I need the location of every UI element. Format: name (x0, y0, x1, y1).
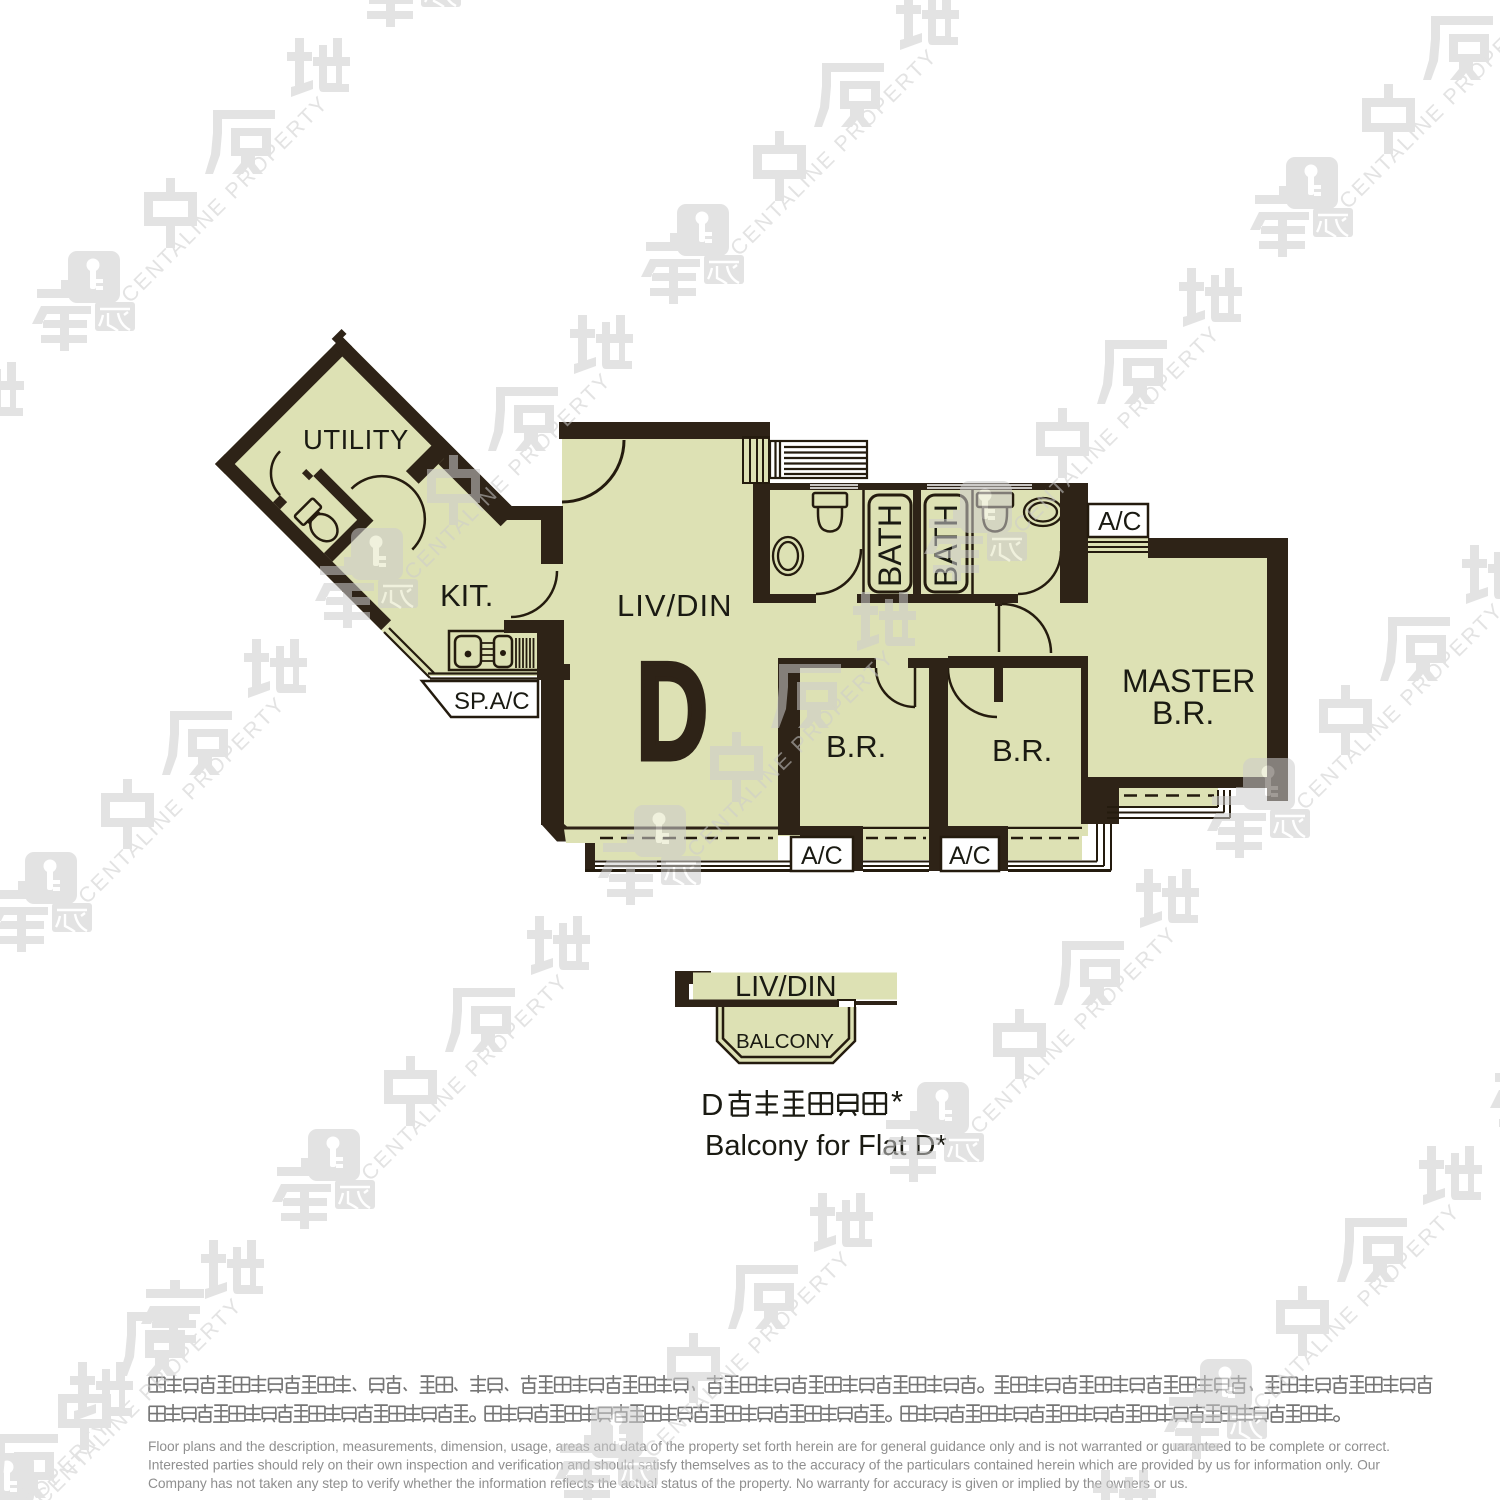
svg-text:A/C: A/C (1098, 506, 1141, 536)
svg-text:B.R.: B.R. (826, 729, 886, 764)
svg-text:LIV/DIN: LIV/DIN (735, 971, 837, 1003)
svg-text:KIT.: KIT. (440, 578, 493, 613)
svg-text:BALCONY: BALCONY (736, 1030, 834, 1053)
svg-text:D: D (636, 633, 708, 789)
svg-text:*: * (891, 1084, 903, 1119)
svg-text:BATH: BATH (872, 504, 908, 587)
svg-text:D: D (701, 1087, 723, 1122)
svg-text:Interested parties should rely: Interested parties should rely on their … (148, 1458, 1380, 1473)
svg-text:SP.A/C: SP.A/C (454, 688, 530, 715)
svg-text:B.R.: B.R. (1152, 695, 1214, 731)
svg-text:A/C: A/C (801, 842, 843, 870)
svg-text:A/C: A/C (949, 842, 991, 870)
svg-text:B.R.: B.R. (992, 733, 1052, 768)
svg-text:MASTER: MASTER (1122, 663, 1255, 699)
svg-text:UTILITY: UTILITY (303, 424, 409, 455)
svg-text:LIV/DIN: LIV/DIN (617, 588, 733, 623)
svg-text:Company has not taken any step: Company has not taken any step to verify… (148, 1476, 1188, 1491)
